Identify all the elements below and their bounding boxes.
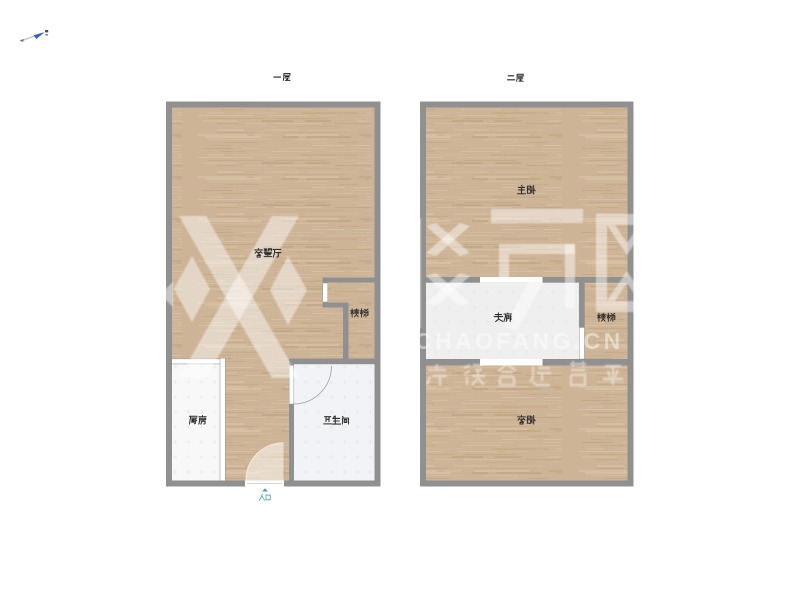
svg-text:CHAOFANG.CN: CHAOFANG.CN xyxy=(415,328,624,354)
